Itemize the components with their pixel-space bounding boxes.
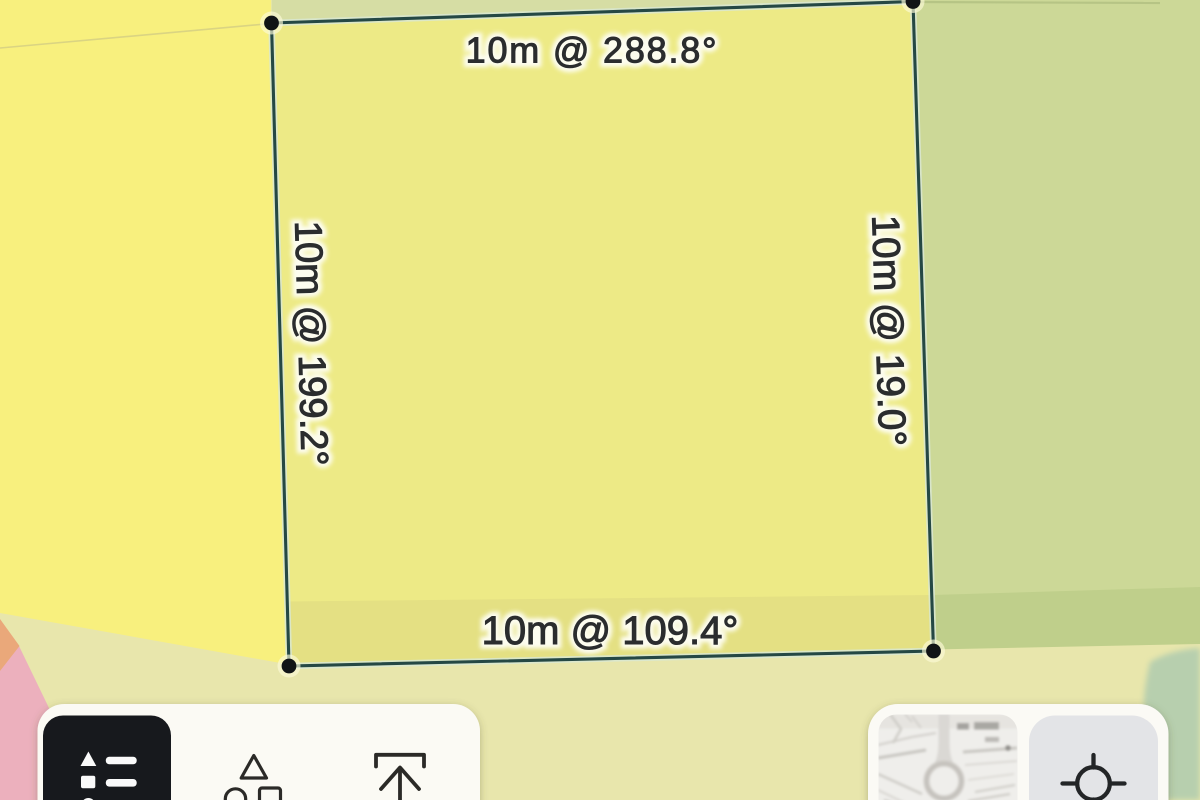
svg-text:10m @ 109.4°: 10m @ 109.4° [482, 609, 739, 653]
svg-text:10m @ 288.8°: 10m @ 288.8° [466, 30, 719, 71]
svg-text:10m @ 19.0°: 10m @ 19.0° [863, 214, 913, 447]
svg-text:10m @ 199.2°: 10m @ 199.2° [286, 220, 336, 466]
